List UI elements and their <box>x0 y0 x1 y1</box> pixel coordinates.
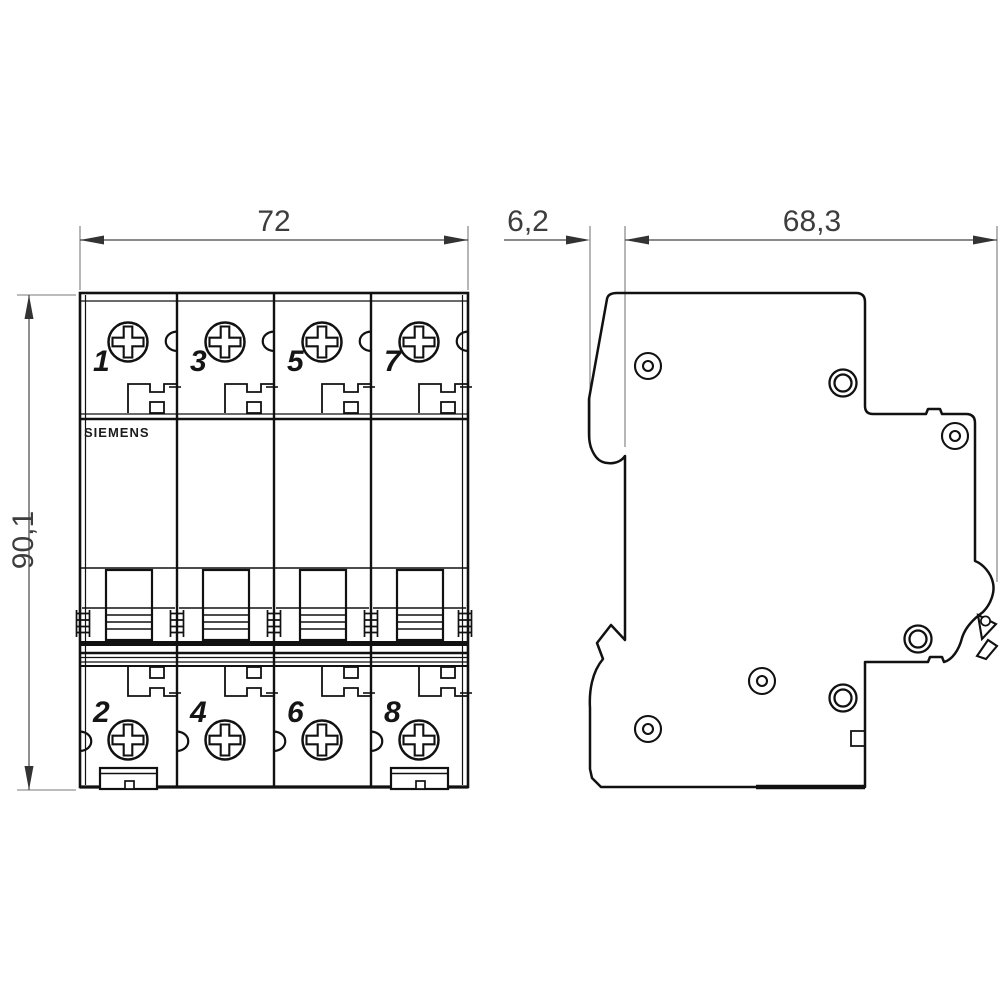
din-clip-tab-icon <box>977 640 997 659</box>
dim-arrow-left <box>80 236 104 245</box>
rivet-icon <box>749 668 775 694</box>
dimension-drawing: 72 90,1 6,2 68,3 <box>0 0 1000 1000</box>
dim-arrow-right <box>444 236 468 245</box>
dim-arrow-down <box>25 766 34 790</box>
terminal-number-2: 2 <box>92 696 110 729</box>
rivet-icon <box>635 716 661 742</box>
mounting-foot <box>100 768 157 789</box>
depth-dimension-label: 68,3 <box>783 205 841 238</box>
rivet-icon <box>942 423 968 449</box>
depth-dimension: 68,3 <box>625 205 997 582</box>
terminal-number-5: 5 <box>287 345 305 378</box>
rivet-icon <box>830 370 857 397</box>
terminal-number-8: 8 <box>384 696 401 729</box>
dim-arrow-up <box>25 295 34 319</box>
terminal-number-7: 7 <box>384 345 402 378</box>
rivet-icon <box>830 685 857 712</box>
height-dimension-label: 90,1 <box>7 511 40 569</box>
rail-offset-dimension: 6,2 <box>504 205 625 448</box>
rail-offset-dimension-label: 6,2 <box>507 205 549 238</box>
brand-label: SIEMENS <box>84 425 150 440</box>
side-profile-outline <box>589 293 994 787</box>
rivet-icon <box>905 626 932 653</box>
terminal-number-4: 4 <box>189 696 207 729</box>
mounting-foot <box>391 768 448 789</box>
width-dimension-label: 72 <box>257 205 290 238</box>
din-clip-pivot-icon <box>981 616 990 625</box>
terminal-number-1: 1 <box>93 345 110 378</box>
rivet-icon <box>635 353 661 379</box>
side-view <box>589 293 997 787</box>
toggle-bar <box>80 641 468 646</box>
dim-arrow-left <box>625 236 649 245</box>
height-dimension: 90,1 <box>7 295 76 790</box>
terminal-number-6: 6 <box>287 696 304 729</box>
dim-arrow-right <box>973 236 997 245</box>
front-view: 1 2 3 4 5 6 <box>77 293 473 789</box>
latch-recess <box>851 731 865 746</box>
dim-arrow-right <box>566 236 590 245</box>
terminal-number-3: 3 <box>190 345 207 378</box>
drawing-svg: 72 90,1 6,2 68,3 <box>0 0 1000 1000</box>
width-dimension: 72 <box>80 205 468 290</box>
